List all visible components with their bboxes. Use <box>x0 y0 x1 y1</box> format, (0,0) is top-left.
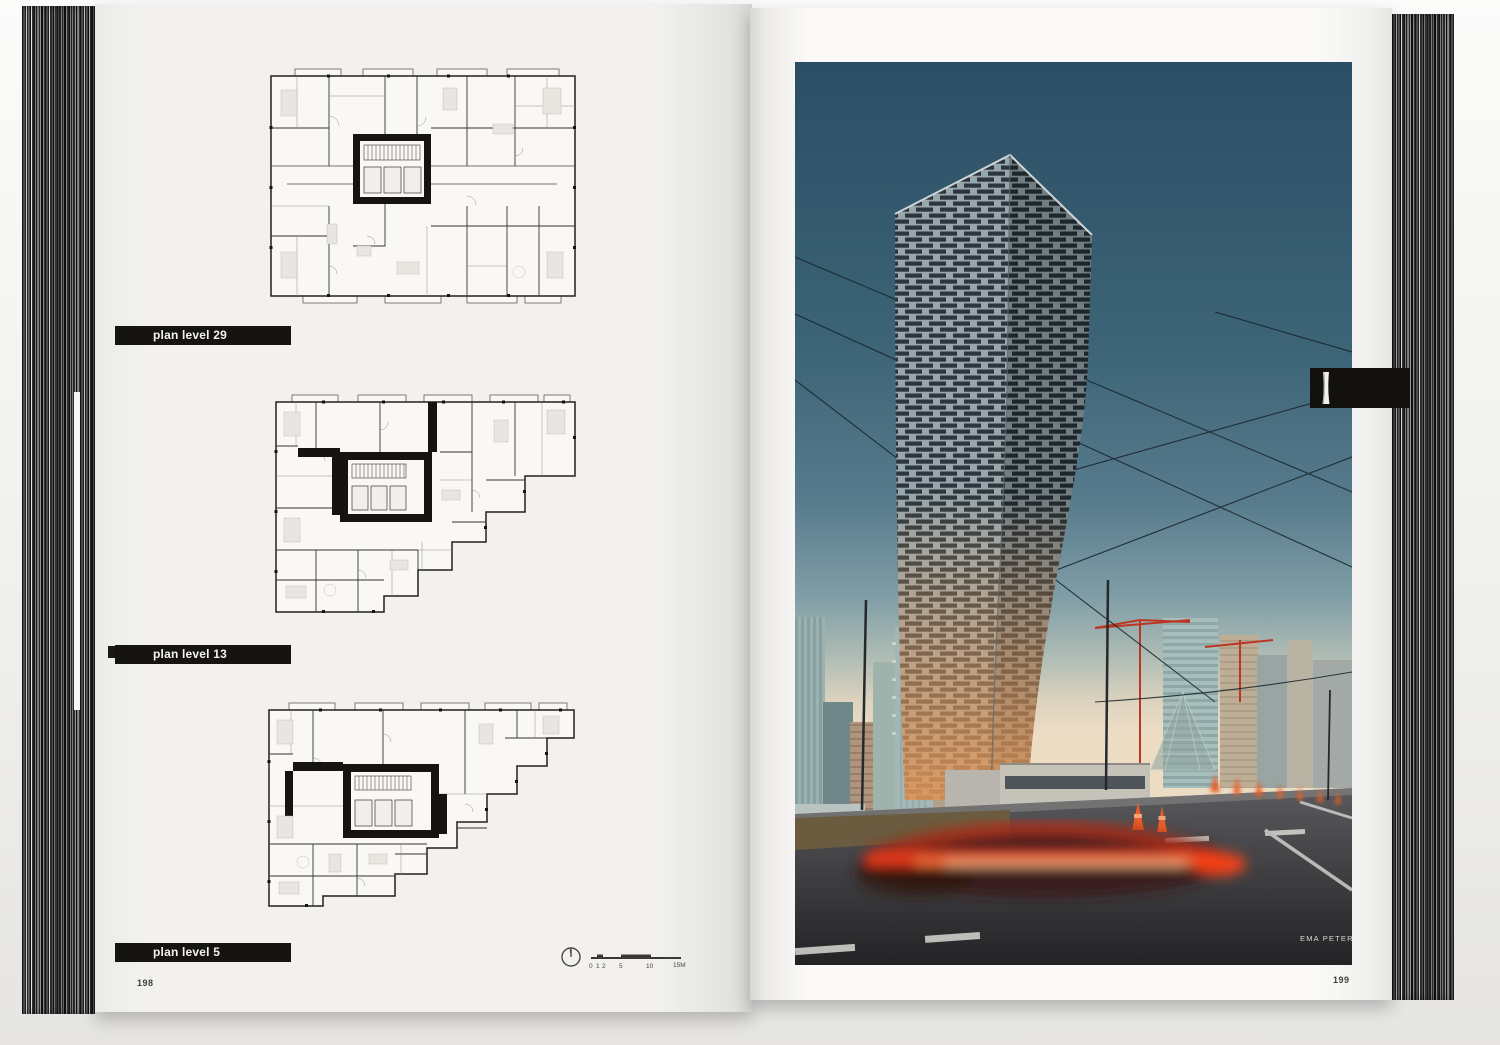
page-number-right: 199 <box>1333 975 1350 985</box>
page-number-left: 198 <box>137 978 154 988</box>
svg-text:15M: 15M <box>673 962 686 969</box>
floor-plan-level-29 <box>267 66 579 306</box>
north-arrow-icon <box>562 948 580 966</box>
svg-text:5: 5 <box>619 963 623 970</box>
chapter-tab <box>1310 368 1410 408</box>
plan-level-13-label: plan level 13 <box>115 645 291 664</box>
page-edge-highlight <box>74 392 80 710</box>
floor-plan-level-13 <box>272 390 579 620</box>
right-page: EMA PETER 199 <box>750 8 1392 1000</box>
vancouver-house-photo: EMA PETER <box>795 62 1352 965</box>
floor-plan-level-5 <box>265 694 578 920</box>
scale-bar: 0 1 2 5 10 15M <box>557 938 697 980</box>
svg-text:10: 10 <box>646 963 654 970</box>
plan-level-29-label: plan level 29 <box>115 326 291 345</box>
page-edge-stack-right <box>1392 14 1454 1000</box>
book-spread-photo: plan level 29 <box>0 0 1500 1045</box>
svg-text:1: 1 <box>596 963 600 970</box>
svg-text:0: 0 <box>589 963 593 970</box>
photo-credit: EMA PETER <box>1300 934 1352 943</box>
tower-silhouette-icon <box>1320 372 1332 404</box>
page-edge-stack-left <box>22 6 95 1014</box>
left-page: plan level 29 <box>95 4 752 1012</box>
plan-level-5-label: plan level 5 <box>115 943 291 962</box>
svg-text:2: 2 <box>602 963 606 970</box>
